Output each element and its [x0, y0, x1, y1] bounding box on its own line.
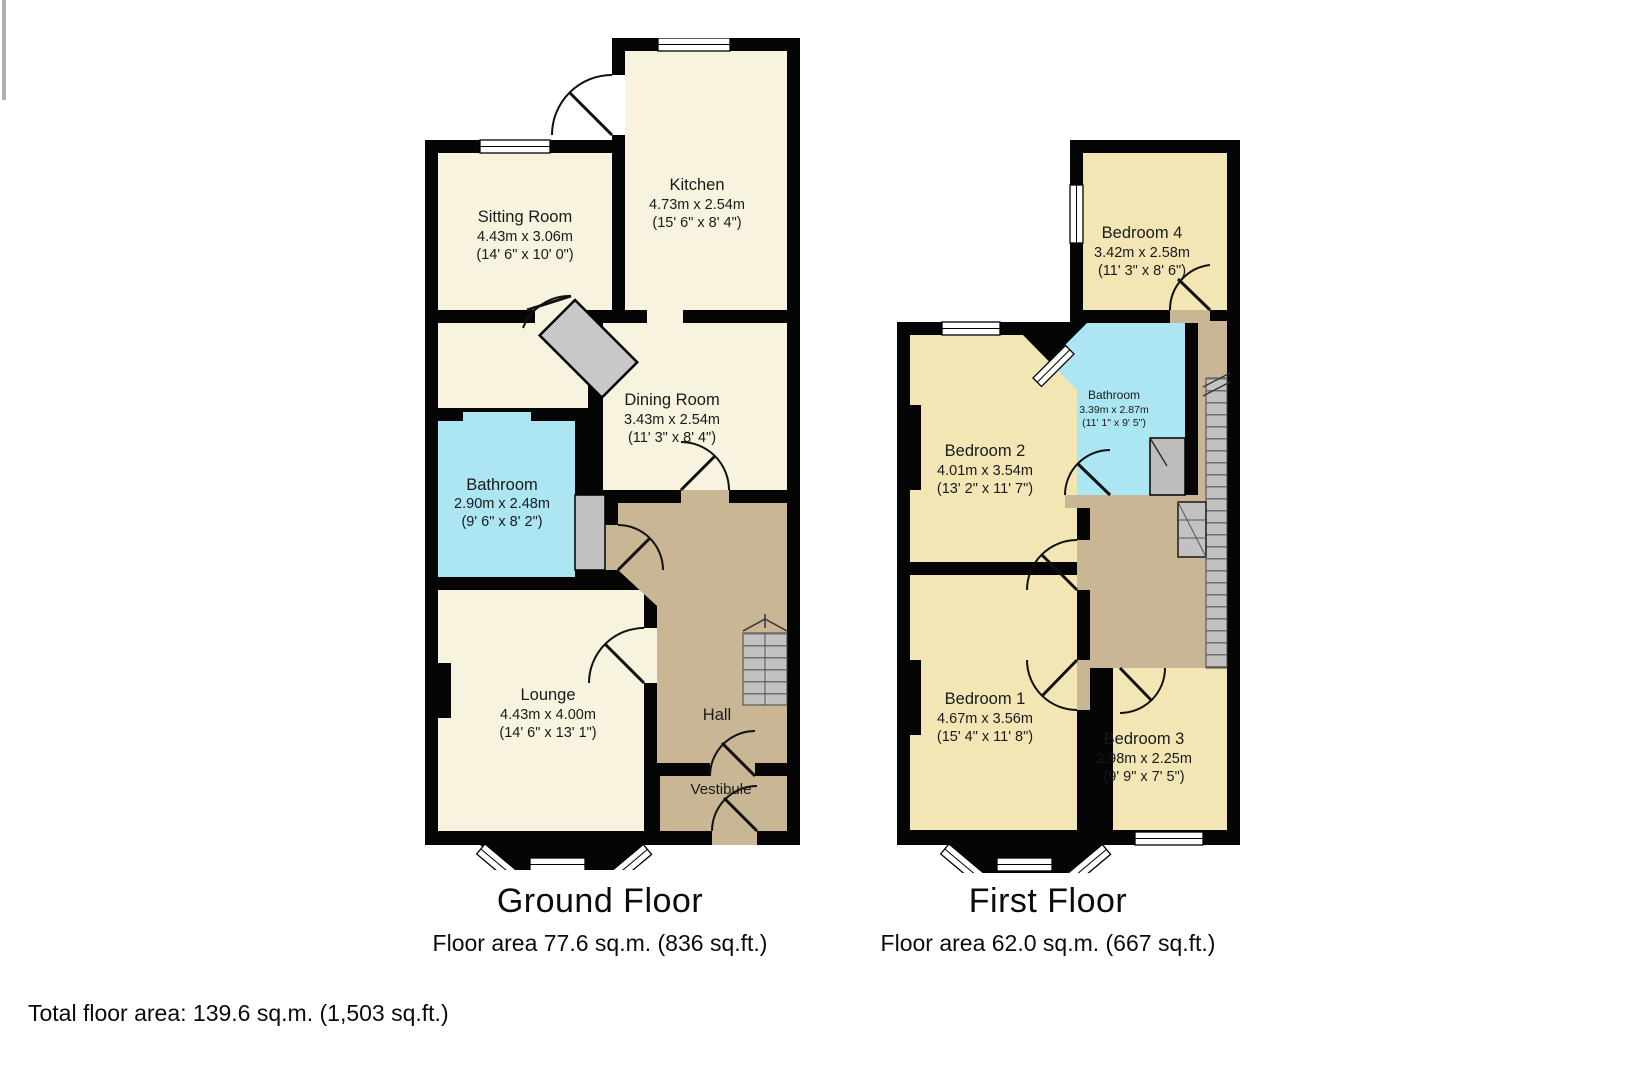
- svg-text:(14' 6" x 13' 1"): (14' 6" x 13' 1"): [499, 725, 596, 741]
- kitchen-label: Kitchen: [669, 176, 724, 194]
- first-floor-title: First Floor: [848, 882, 1248, 921]
- svg-text:3.39m x 2.87m: 3.39m x 2.87m: [1079, 404, 1149, 416]
- svg-text:(15' 4" x 11' 8"): (15' 4" x 11' 8"): [937, 729, 1033, 745]
- bedroom-4-label: Bedroom 4: [1102, 224, 1183, 242]
- kitchen-window: [658, 38, 730, 51]
- dining-room-label: Dining Room: [624, 391, 719, 409]
- ff-winder-steps: [1178, 502, 1206, 557]
- svg-text:(14' 6" x 10' 0"): (14' 6" x 10' 0"): [476, 247, 573, 263]
- room-bedroom-3: [1113, 668, 1227, 830]
- svg-text:(9' 6" x 8' 2"): (9' 6" x 8' 2"): [461, 514, 542, 530]
- ff-chimney-breast-bd2: [897, 405, 921, 490]
- svg-text:(15' 6" x 8' 4"): (15' 6" x 8' 4"): [652, 215, 741, 231]
- bedroom-2-window: [942, 322, 1000, 335]
- gf-half-wall-notch: [463, 412, 531, 421]
- svg-text:2.90m x 2.48m: 2.90m x 2.48m: [454, 496, 550, 512]
- sitting-room-label: Sitting Room: [478, 208, 572, 226]
- first-floor-drawing: Bedroom 4 3.42m x 2.58m (11' 3" x 8' 6")…: [897, 140, 1240, 873]
- bedroom-4-window: [1070, 185, 1083, 243]
- kitchen-side-door: [552, 75, 612, 135]
- sitting-room-window: [480, 140, 550, 153]
- gf-stairs: [743, 614, 787, 705]
- svg-text:(13' 2" x 11' 7"): (13' 2" x 11' 7"): [937, 481, 1033, 497]
- first-floor-area: Floor area 62.0 sq.m. (667 sq.ft.): [848, 930, 1248, 957]
- svg-text:3.43m x 2.54m: 3.43m x 2.54m: [624, 412, 720, 428]
- vestibule-label: Vestibule: [691, 781, 752, 798]
- bedroom-1-label: Bedroom 1: [945, 690, 1026, 708]
- svg-text:(11' 3" x 8' 4"): (11' 3" x 8' 4"): [628, 430, 716, 446]
- bathroom-ff-label: Bathroom: [1088, 388, 1140, 402]
- ff-chimney-breast-bd1: [897, 660, 921, 735]
- ground-floor-plan: Sitting Room 4.43m x 3.06m (14' 6" x 10'…: [425, 38, 800, 870]
- ff-stairs: [1203, 373, 1230, 668]
- svg-text:4.43m x 3.06m: 4.43m x 3.06m: [477, 229, 573, 245]
- bedroom-2-label: Bedroom 2: [945, 442, 1026, 460]
- ground-floor-caption: Ground Floor Floor area 77.6 sq.m. (836 …: [400, 882, 800, 957]
- screen-edge-artifact: [2, 0, 6, 100]
- svg-text:(11' 3" x 8' 6"): (11' 3" x 8' 6"): [1098, 263, 1186, 279]
- svg-text:(9' 9" x 7' 5"): (9' 9" x 7' 5"): [1103, 769, 1184, 785]
- ground-floor-title: Ground Floor: [400, 882, 800, 921]
- svg-text:4.43m x 4.00m: 4.43m x 4.00m: [500, 707, 596, 723]
- svg-text:2.98m x 2.25m: 2.98m x 2.25m: [1096, 751, 1192, 767]
- svg-text:3.42m x 2.58m: 3.42m x 2.58m: [1094, 245, 1190, 261]
- ground-floor-area: Floor area 77.6 sq.m. (836 sq.ft.): [400, 930, 800, 957]
- svg-text:4.67m x 3.56m: 4.67m x 3.56m: [937, 711, 1033, 727]
- svg-text:4.73m x 2.54m: 4.73m x 2.54m: [649, 197, 745, 213]
- bedroom-3-window: [1135, 832, 1203, 845]
- first-floor-plan: Bedroom 4 3.42m x 2.58m (11' 3" x 8' 6")…: [897, 140, 1240, 873]
- gf-door-recess: [575, 495, 605, 570]
- gf-chimney-breast: [425, 663, 451, 718]
- svg-text:(11' 1" x 9' 5"): (11' 1" x 9' 5"): [1082, 417, 1146, 429]
- total-floor-area: Total floor area: 139.6 sq.m. (1,503 sq.…: [28, 1000, 449, 1027]
- bedroom-3-label: Bedroom 3: [1104, 730, 1185, 748]
- bathroom-gf-label: Bathroom: [466, 476, 538, 494]
- ground-floor-drawing: Sitting Room 4.43m x 3.06m (14' 6" x 10'…: [425, 38, 800, 870]
- ff-shower: [1150, 438, 1185, 495]
- first-floor-caption: First Floor Floor area 62.0 sq.m. (667 s…: [848, 882, 1248, 957]
- svg-text:4.01m x 3.54m: 4.01m x 3.54m: [937, 463, 1033, 479]
- hall-label: Hall: [703, 706, 731, 724]
- lounge-label: Lounge: [520, 686, 575, 704]
